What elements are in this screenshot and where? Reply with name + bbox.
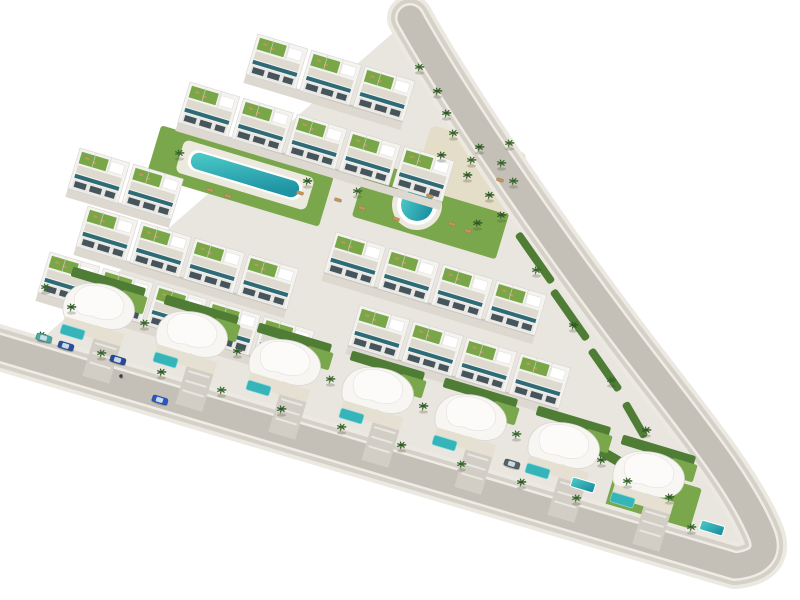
aerial-site-render [0, 0, 800, 600]
aerial-render-image [0, 0, 800, 600]
